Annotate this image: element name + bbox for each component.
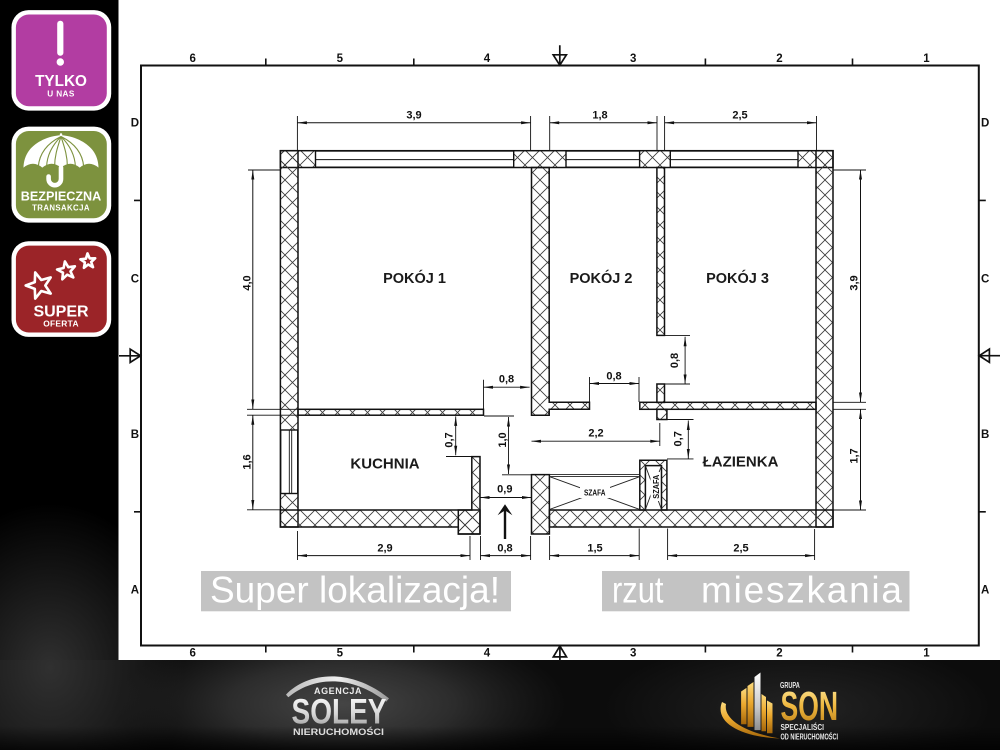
svg-text:BEZPIECZNA: BEZPIECZNA	[21, 189, 101, 203]
svg-text:2: 2	[776, 53, 782, 65]
svg-text:4,0: 4,0	[242, 275, 254, 290]
svg-text:rzut: rzut	[612, 570, 664, 611]
svg-text:POKÓJ 1: POKÓJ 1	[383, 269, 446, 287]
svg-text:0,9: 0,9	[497, 484, 512, 496]
svg-text:1,7: 1,7	[849, 448, 861, 463]
svg-text:SPECJALIŚCI: SPECJALIŚCI	[781, 723, 825, 732]
svg-text:1,5: 1,5	[587, 543, 602, 555]
svg-text:0,8: 0,8	[669, 353, 681, 368]
svg-text:1,0: 1,0	[497, 432, 509, 447]
svg-text:6: 6	[189, 53, 195, 65]
svg-text:3: 3	[630, 53, 636, 65]
svg-text:2,2: 2,2	[588, 428, 603, 440]
svg-text:U NAS: U NAS	[47, 89, 75, 98]
svg-text:5: 5	[337, 648, 344, 660]
svg-text:6: 6	[189, 648, 195, 660]
svg-text:3,9: 3,9	[849, 275, 861, 290]
svg-text:OFERTA: OFERTA	[43, 319, 79, 329]
svg-text:4: 4	[484, 648, 491, 660]
svg-text:0,7: 0,7	[673, 431, 685, 446]
svg-text:3,9: 3,9	[406, 110, 421, 122]
svg-text:NIERUCHOMOŚCI: NIERUCHOMOŚCI	[293, 726, 384, 738]
svg-text:0,7: 0,7	[444, 432, 456, 447]
svg-text:1,8: 1,8	[592, 110, 607, 122]
svg-text:SZAFA: SZAFA	[652, 475, 661, 499]
svg-text:2,5: 2,5	[733, 543, 748, 555]
svg-text:A: A	[131, 585, 139, 597]
svg-text:3: 3	[630, 648, 636, 660]
svg-text:C: C	[981, 274, 989, 286]
svg-text:Super lokalizacja!: Super lokalizacja!	[210, 570, 500, 611]
svg-text:0,8: 0,8	[497, 543, 512, 555]
svg-text:1,6: 1,6	[242, 454, 254, 469]
svg-text:SOLEY: SOLEY	[292, 692, 387, 731]
svg-text:SZAFA: SZAFA	[584, 488, 606, 497]
svg-text:KUCHNIA: KUCHNIA	[350, 456, 419, 473]
svg-text:1: 1	[923, 53, 930, 65]
svg-text:TRANSAKCJA: TRANSAKCJA	[32, 203, 90, 212]
svg-text:SON: SON	[781, 683, 839, 729]
svg-text:B: B	[981, 429, 989, 441]
svg-text:1: 1	[923, 648, 930, 660]
svg-text:5: 5	[337, 53, 344, 65]
svg-text:OD NIERUCHOMOŚCI: OD NIERUCHOMOŚCI	[781, 733, 839, 742]
svg-text:C: C	[131, 274, 139, 286]
svg-text:POKÓJ 2: POKÓJ 2	[570, 269, 633, 287]
svg-text:ŁAZIENKA: ŁAZIENKA	[703, 454, 779, 471]
svg-text:D: D	[131, 118, 139, 130]
svg-text:0,8: 0,8	[606, 371, 621, 383]
svg-text:2: 2	[776, 648, 782, 660]
svg-text:POKÓJ 3: POKÓJ 3	[706, 269, 769, 287]
svg-text:2,9: 2,9	[377, 543, 392, 555]
svg-text:A: A	[981, 585, 989, 597]
svg-text:B: B	[131, 429, 139, 441]
svg-text:mieszkania: mieszkania	[701, 570, 902, 611]
svg-text:D: D	[981, 118, 989, 130]
svg-text:TYLKO: TYLKO	[35, 73, 87, 90]
svg-text:0,8: 0,8	[499, 374, 514, 386]
svg-text:4: 4	[484, 53, 491, 65]
svg-text:2,5: 2,5	[732, 110, 747, 122]
